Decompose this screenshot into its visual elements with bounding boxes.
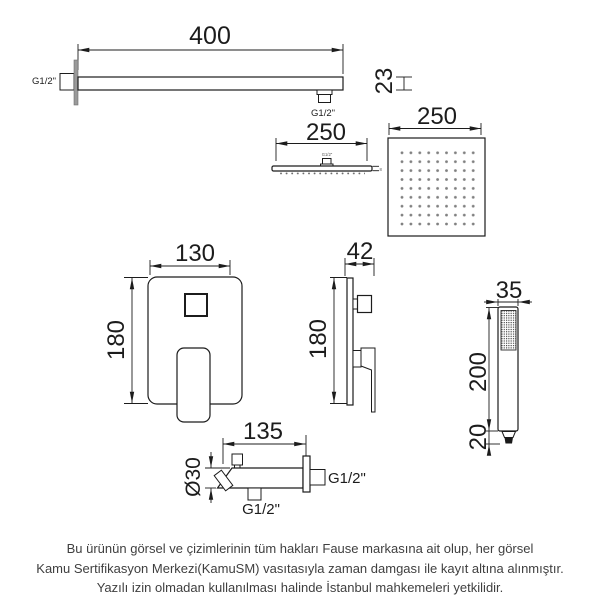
dim-head-side-thickness: 8	[373, 166, 383, 172]
dim-mixer-height-side: 180	[305, 278, 347, 404]
mixer-handle-side	[353, 348, 375, 412]
outlet-diameter-label: Ø30	[182, 457, 205, 497]
head-side-nozzle-row	[279, 172, 365, 175]
dim-hand-shower-width: 35	[484, 277, 532, 306]
dim-mixer-width: 130	[150, 240, 230, 275]
technical-drawing-page: 400 G1/2" G1/2" 23 250 G1/2"	[0, 0, 600, 600]
outlet-length-label: 135	[243, 418, 283, 445]
hand-shower-width-label: 35	[496, 277, 523, 304]
copyright-line-2: Kamu Sertifikasyon Merkezi(KamuSM) vasıt…	[0, 559, 600, 579]
copyright-line-1: Bu ürünün görsel ve çizimlerinin tüm hak…	[0, 539, 600, 559]
wall-outlet-view: 135 Ø30 G1/2" G1/2"	[182, 418, 366, 518]
mixer-height-label-side: 180	[305, 319, 332, 359]
mixer-depth-label: 42	[347, 238, 374, 265]
dim-head-top-width: 250	[389, 103, 481, 135]
hand-shower-spray-face	[501, 311, 516, 351]
mixer-width-label: 130	[175, 240, 215, 267]
arm-outlet-stub	[317, 90, 332, 103]
dim-hand-shower-connector: 20	[465, 424, 500, 455]
dim-arm-length: 400	[78, 22, 343, 74]
hand-shower-length-label: 200	[465, 352, 492, 392]
outlet-wall-thread-label: G1/2"	[328, 470, 366, 487]
head-top-nozzle-grid	[396, 146, 480, 230]
hand-shower-connector-label: 20	[465, 424, 492, 451]
hand-shower-connector	[502, 432, 516, 444]
shower-set-technical-drawing: 400 G1/2" G1/2" 23 250 G1/2"	[0, 0, 600, 540]
copyright-line-3: Yazılı izin olmadan kullanılması halinde…	[0, 578, 600, 598]
outlet-wall-thread	[310, 470, 325, 486]
outlet-bottom-thread-label: G1/2"	[242, 501, 280, 518]
dim-mixer-height-front: 180	[103, 278, 148, 404]
copyright-notice: Bu ürünün görsel ve çizimlerinin tüm hak…	[0, 539, 600, 598]
arm-length-label: 400	[189, 22, 231, 50]
dim-arm-tube-height: 23	[371, 68, 412, 95]
dim-hand-shower-length: 200	[465, 308, 498, 432]
head-side-width-label: 250	[306, 119, 346, 146]
shower-head-top-view: 250	[388, 103, 485, 236]
arm-tube-height-label: 23	[371, 68, 398, 95]
head-side-thickness-label: 8	[380, 167, 383, 172]
mixer-diverter-side	[353, 296, 372, 313]
mixer-handle-front	[177, 348, 210, 422]
shower-head-side-view: 250 G1/2" 8	[272, 119, 383, 175]
outlet-top-knob	[232, 454, 243, 469]
arm-wall-thread-label: G1/2"	[32, 76, 56, 87]
head-side-thread-label: G1/2"	[322, 152, 333, 157]
arm-tube	[78, 77, 343, 90]
mixer-diverter-button	[185, 294, 207, 316]
mixer-front-view: 130 180	[103, 240, 242, 422]
mixer-height-label-front: 180	[103, 320, 130, 360]
arm-wall-thread	[60, 74, 74, 91]
arm-outlet-thread-label: G1/2"	[311, 108, 335, 119]
head-top-width-label: 250	[417, 103, 457, 130]
hand-shower-view: 35 200 20	[465, 277, 532, 455]
shower-arm-view: 400 G1/2" G1/2" 23	[32, 22, 412, 119]
head-side-plate	[272, 166, 372, 171]
dim-mixer-depth: 42	[345, 238, 374, 276]
mixer-side-view: 42 180	[305, 238, 375, 412]
outlet-bottom-stub	[248, 488, 261, 500]
mixer-side-plate	[347, 278, 353, 405]
outlet-wall-flange	[303, 456, 310, 492]
